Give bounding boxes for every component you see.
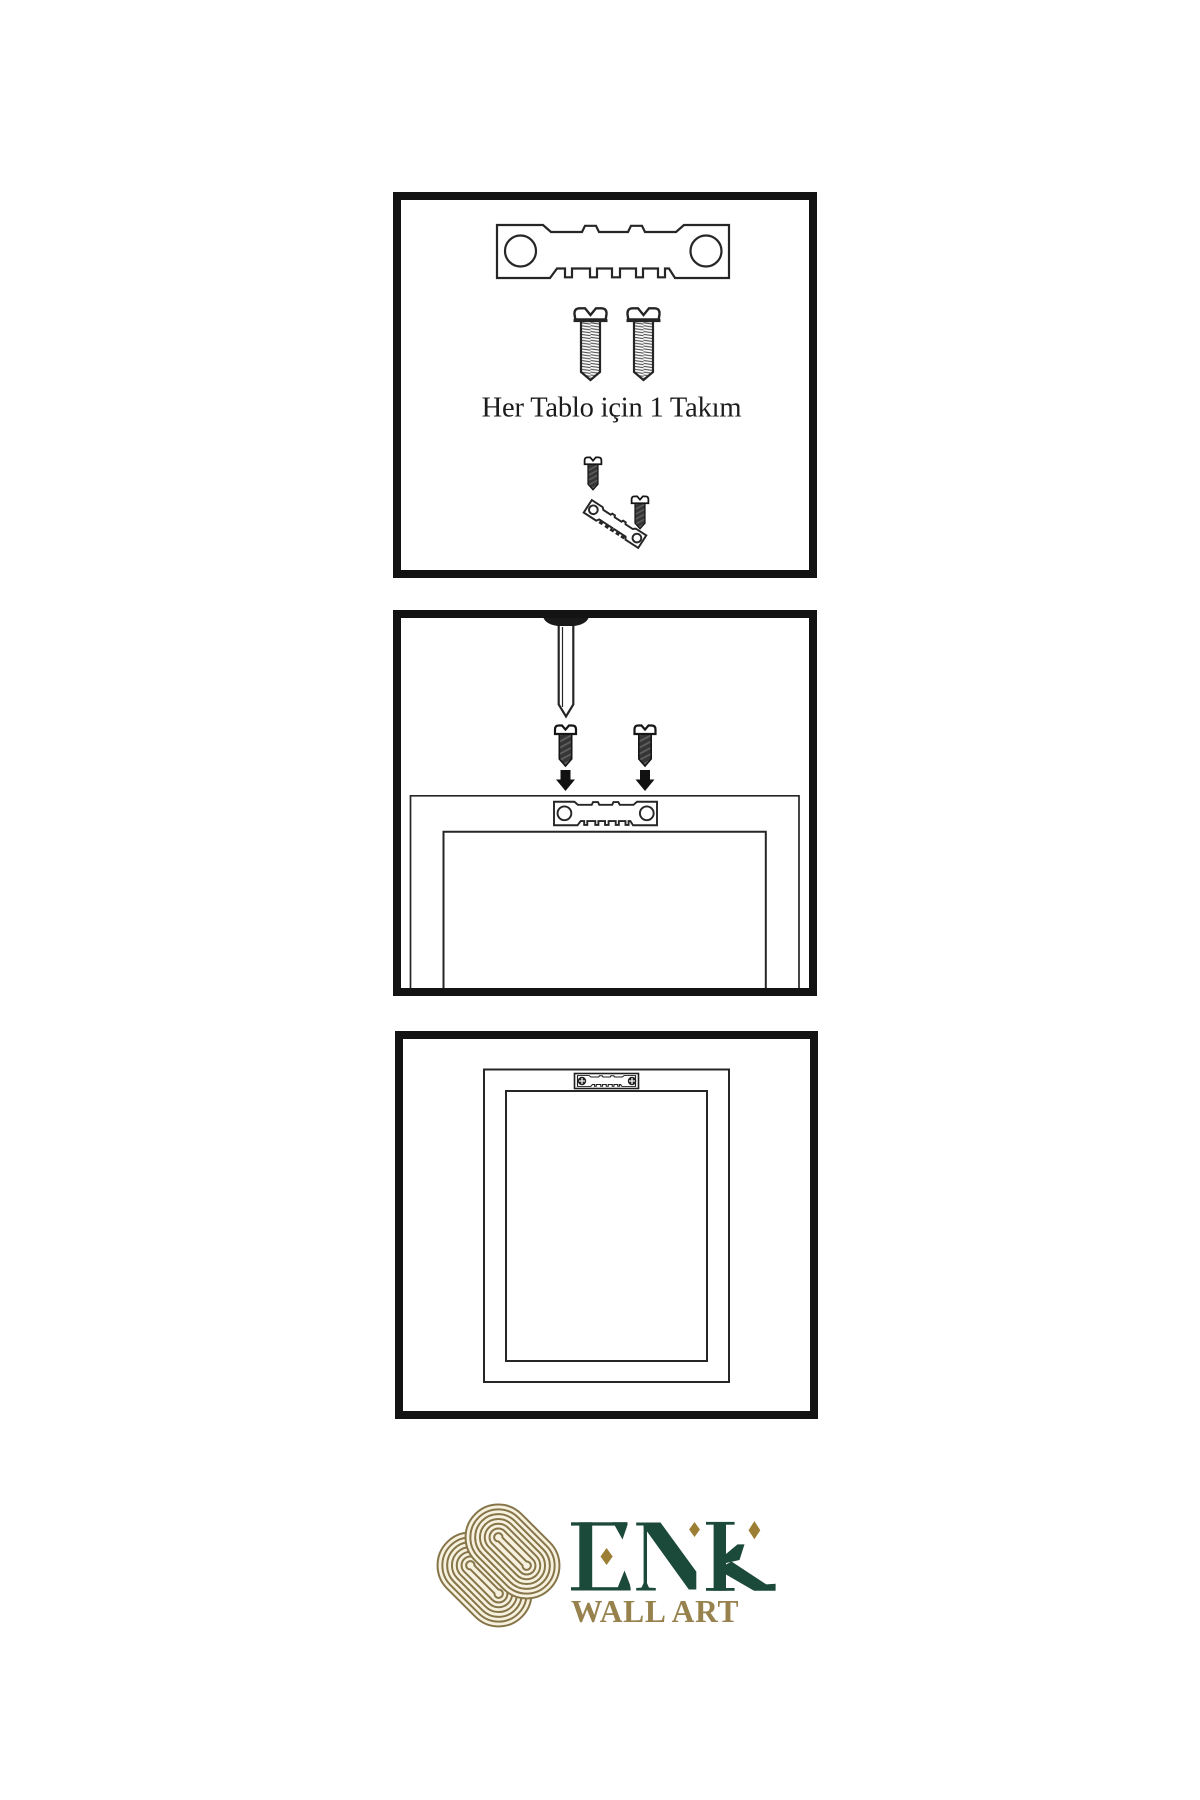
svg-text:WALL ART: WALL ART: [571, 1594, 739, 1629]
svg-text:Her Tablo için 1 Takım: Her Tablo için 1 Takım: [482, 393, 742, 424]
